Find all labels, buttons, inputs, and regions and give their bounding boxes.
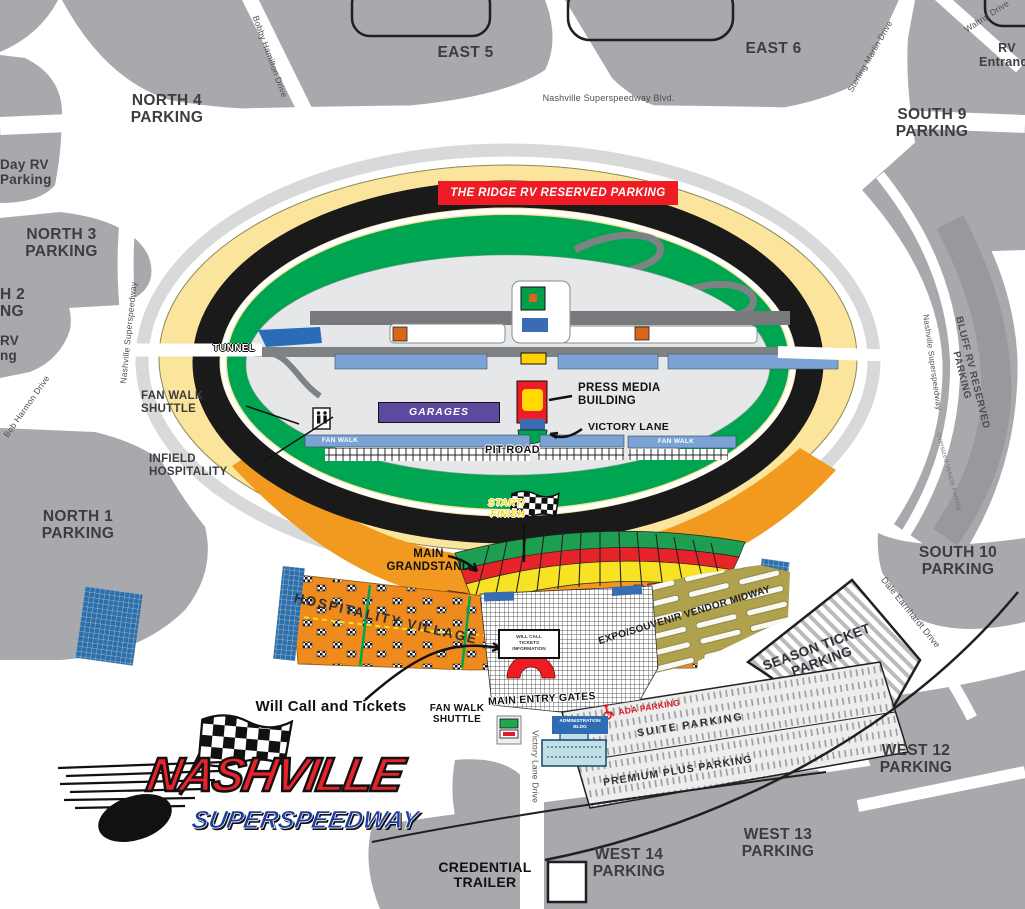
label-tunnel: TUNNEL (208, 343, 260, 354)
parking-label-rv-cut: RV ng (0, 334, 60, 364)
parking-label-south10: SOUTH 10 PARKING (902, 544, 1014, 578)
label-start-finish: START/ FINISH (470, 498, 525, 520)
restroom-icon (313, 408, 330, 429)
label-fan-walk-left: FAN WALK (314, 437, 366, 444)
press-media-building (517, 381, 547, 443)
label-will-call: Will Call and Tickets (247, 699, 415, 716)
will-call-box: WILL CALL TICKETS INFORMATION (498, 629, 560, 659)
parking-label-north4: NORTH 4 PARKING (103, 92, 231, 126)
parking-label-north3: NORTH 3 PARKING (4, 226, 119, 260)
shuttle-lot (75, 586, 142, 665)
label-rv-entrance: RV Entrance (972, 42, 1025, 70)
ridge-rv-banner-label: THE RIDGE RV RESERVED PARKING (450, 187, 665, 200)
label-infield-hospitality: INFIELD HOSPITALITY (149, 453, 261, 478)
parking-label-east6: EAST 6 (726, 40, 821, 57)
ridge-rv-banner: THE RIDGE RV RESERVED PARKING (438, 181, 678, 205)
road-label-nss-blvd: Nashville Superspeedway Blvd. (536, 94, 681, 104)
logo-superspeedway: SUPERSPEEDWAY (148, 808, 462, 833)
garages-label: GARAGES (409, 407, 469, 419)
track-facility-map: THE RIDGE RV RESERVED PARKING GARAGES WI… (0, 0, 1025, 909)
parking-label-north1: NORTH 1 PARKING (18, 508, 138, 542)
label-fan-walk-right: FAN WALK (650, 438, 702, 445)
parking-label-east5: EAST 5 (418, 44, 513, 61)
label-pit-road: PIT ROAD (465, 444, 560, 456)
label-press-media: PRESS MEDIA BUILDING (578, 382, 693, 407)
parking-label-west14: WEST 14 PARKING (568, 846, 690, 880)
label-victory-lane: VICTORY LANE (588, 422, 693, 434)
label-credential-trailer: CREDENTIAL TRAILER (424, 860, 546, 891)
parking-label-west12: WEST 12 PARKING (862, 742, 970, 776)
administration-sign: ADMINISTRATION BLDG (552, 716, 608, 734)
road-label-victory-lane-drive: Victory Lane Drive (530, 711, 539, 823)
administration-label: ADMINISTRATION BLDG (559, 719, 600, 731)
label-fan-walk-shuttle-left: FAN WALK SHUTTLE (141, 390, 233, 415)
speedway (142, 150, 874, 606)
garages-banner: GARAGES (378, 402, 500, 423)
shuttle-stop-icon (497, 716, 521, 744)
parking-label-south9: SOUTH 9 PARKING (878, 106, 986, 140)
label-main-grandstand: MAIN GRANDSTAND (381, 548, 476, 573)
will-call-box-label: WILL CALL TICKETS INFORMATION (512, 635, 545, 652)
parking-label-west13: WEST 13 PARKING (722, 826, 834, 860)
parking-label-day-rv: Day RV Parking (0, 158, 80, 188)
logo-nashville: NASHVILLE (98, 752, 451, 800)
parking-label-north2-cut: H 2 NG (0, 286, 60, 320)
